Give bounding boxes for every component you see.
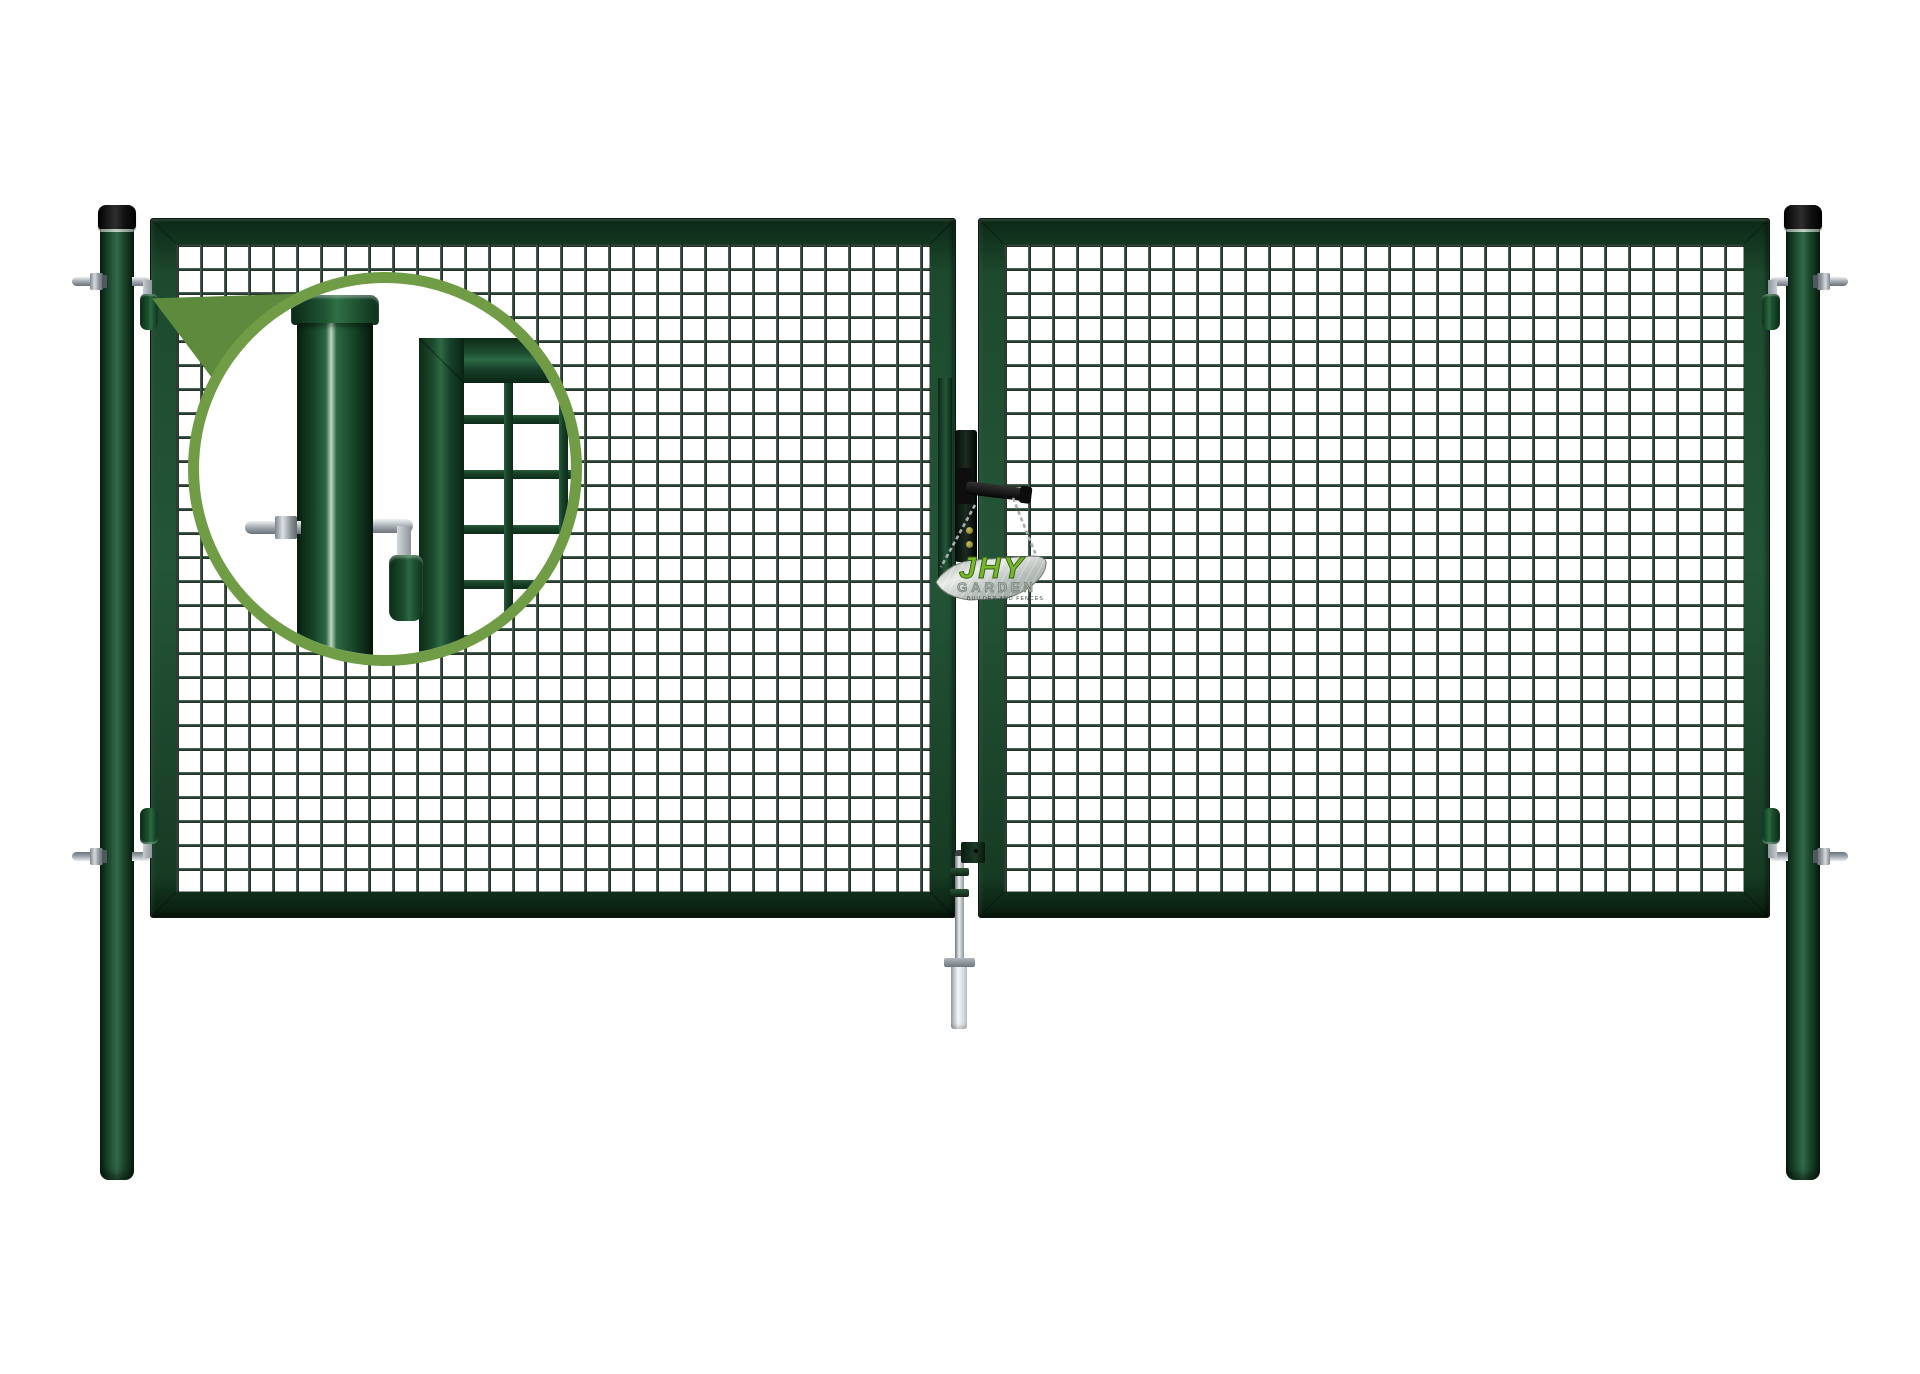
hinge-washer bbox=[102, 275, 107, 288]
hinge-washer bbox=[1813, 275, 1818, 288]
inset-post-cap bbox=[291, 295, 379, 325]
inset-gate-frame-stile bbox=[419, 338, 464, 655]
ground-stop-stem bbox=[951, 967, 967, 1029]
miter-seam bbox=[151, 219, 176, 244]
inset-hinge-sleeve bbox=[389, 555, 423, 621]
rod-clamp bbox=[950, 889, 969, 897]
left-post-cap bbox=[98, 205, 136, 229]
miter-seam bbox=[979, 892, 1004, 917]
miter-seam bbox=[151, 892, 176, 917]
ground-stop-bar bbox=[944, 958, 975, 967]
latch-keeper bbox=[961, 842, 985, 863]
miter-seam bbox=[930, 219, 955, 244]
hinge-left-bottom bbox=[66, 822, 166, 886]
right-post-cap bbox=[1784, 205, 1822, 229]
hinge-nut bbox=[1817, 273, 1830, 290]
miter-seam bbox=[1744, 892, 1769, 917]
miter-seam bbox=[1744, 219, 1769, 244]
hinge-nut bbox=[1817, 848, 1830, 865]
brand-tag-group: JHY GARDEN BUILDER AND FENCES bbox=[915, 460, 1095, 620]
right-post bbox=[1786, 205, 1820, 1180]
tag-tagline-text: BUILDER AND FENCES bbox=[967, 596, 1044, 602]
gate-leaf-right bbox=[978, 218, 1770, 918]
inset-mesh bbox=[464, 383, 571, 655]
left-post bbox=[100, 205, 134, 1180]
hinge-washer bbox=[102, 850, 107, 863]
miter-seam bbox=[979, 219, 1004, 244]
inset-post bbox=[297, 323, 373, 655]
inset-miter-seam bbox=[419, 338, 464, 383]
garden-gate-product-image: JHY GARDEN BUILDER AND FENCES bbox=[0, 0, 1920, 1374]
rod-clamp bbox=[950, 868, 969, 876]
hinge-sleeve bbox=[1762, 808, 1780, 844]
hinge-right-bottom bbox=[1754, 822, 1854, 886]
hinge-washer bbox=[1813, 850, 1818, 863]
hinge-left-top bbox=[66, 252, 166, 316]
inset-hinge-nut bbox=[275, 516, 297, 539]
hinge-sleeve bbox=[1762, 294, 1780, 330]
tag-line-text: GARDEN bbox=[957, 580, 1037, 595]
keeper-screw bbox=[974, 849, 978, 853]
hinge-right-top bbox=[1754, 252, 1854, 316]
mesh-right bbox=[1004, 244, 1744, 892]
detail-magnifier-inset bbox=[188, 272, 582, 666]
hinge-sleeve bbox=[140, 808, 158, 844]
